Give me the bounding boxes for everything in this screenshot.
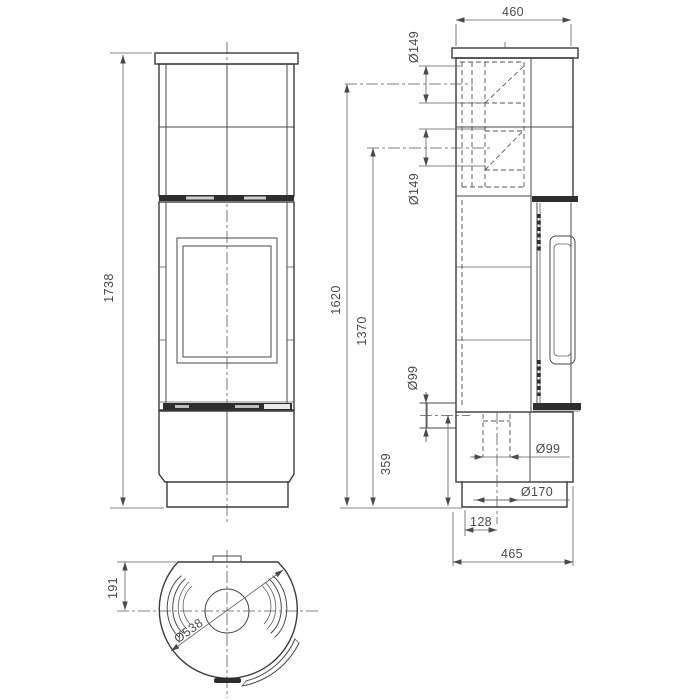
side-door-glass xyxy=(554,244,571,356)
dim-side-bottom-air-offset-label: 128 xyxy=(470,515,492,529)
front-top-plate xyxy=(155,53,298,64)
front-plinth xyxy=(167,482,288,507)
front-view: 1738 xyxy=(102,42,298,522)
front-upper-trim-strip xyxy=(159,195,294,201)
top-front-tab xyxy=(214,678,241,683)
dim-side-rear-flue-height-label: 1370 xyxy=(355,316,369,345)
dim-top-body-dia-label: Ø538 xyxy=(172,616,206,646)
stove-dimension-drawing: 1738 xyxy=(0,0,700,700)
dim-side-floor-opening-dia-label: Ø170 xyxy=(521,485,553,499)
side-body xyxy=(456,58,573,412)
dim-side-floor-opening-dia: Ø170 xyxy=(473,485,570,500)
dim-side-top-flue-height-label: 1620 xyxy=(329,285,343,314)
front-firebox-section xyxy=(159,202,294,410)
side-view: 460 Ø149 Ø149 Ø99 1620 xyxy=(329,5,581,566)
dim-front-overall-height: 1738 xyxy=(102,53,164,508)
side-flue-hidden-lines xyxy=(460,62,524,187)
top-door-glass-arc xyxy=(242,639,299,686)
dim-side-rear-flue-dia-label: Ø149 xyxy=(407,173,421,205)
dim-side-bottom-air-dia: Ø99 xyxy=(470,442,570,457)
dim-top-rear-flat: 191 xyxy=(106,562,176,610)
dim-side-rear-air-dia: Ø99 xyxy=(406,366,426,442)
dim-side-rear-flue-dia: Ø149 xyxy=(407,129,486,205)
side-door-profile xyxy=(532,196,581,411)
dim-side-bottom-air-offset: 128 xyxy=(465,510,497,536)
dim-side-rear-flue-height: 1370 xyxy=(355,148,373,506)
dim-side-rear-air-height-label: 359 xyxy=(379,453,393,475)
dim-side-top-flue-dia-label: Ø149 xyxy=(407,31,421,63)
dim-side-base-width-label: 465 xyxy=(501,547,523,561)
dim-side-top-width: 460 xyxy=(456,5,571,46)
side-base xyxy=(456,412,573,507)
dim-side-rear-air-dia-label: Ø99 xyxy=(406,366,420,391)
side-top-plate xyxy=(452,42,578,58)
technical-drawing-canvas: 1738 xyxy=(0,0,700,700)
dim-front-overall-height-label: 1738 xyxy=(102,273,116,302)
front-lower-trim-strip xyxy=(159,402,294,410)
dim-side-top-width-label: 460 xyxy=(502,5,524,19)
side-centerlines xyxy=(345,84,497,524)
dim-side-rear-air-height: 359 xyxy=(379,415,448,506)
dim-top-rear-flat-label: 191 xyxy=(106,577,120,599)
side-bottom-air-inlet-hidden xyxy=(483,414,510,457)
front-base-tiles xyxy=(159,411,294,482)
dim-side-bottom-air-dia-label: Ø99 xyxy=(536,442,561,456)
dim-side-top-flue-dia: Ø149 xyxy=(407,31,484,103)
top-view: Ø538 191 xyxy=(106,550,318,698)
front-upper-tiles xyxy=(159,64,294,196)
top-right-handle xyxy=(262,576,287,637)
